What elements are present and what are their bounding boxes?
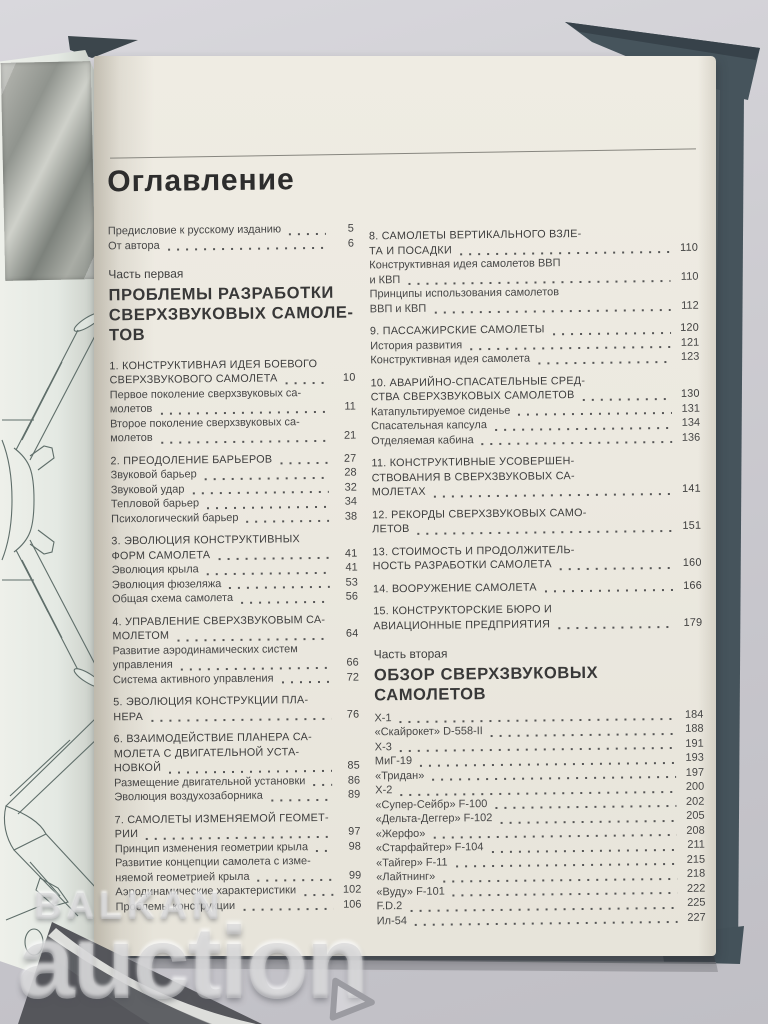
toc-page-number: 134	[676, 416, 700, 431]
toc-entry: Часть первая	[108, 265, 354, 282]
dot-leader	[283, 380, 328, 385]
toc-entry: 8. САМОЛЕТЫ ВЕРТИКАЛЬНОГО ВЗЛЕ-ТА И ПОСА…	[369, 226, 698, 259]
toc-page-number: 64	[334, 627, 358, 642]
toc-page-number: 160	[678, 556, 702, 571]
toc-entry-label: 1. КОНСТРУКТИВНАЯ ИДЕЯ БОЕВОГО	[109, 357, 317, 371]
dot-leader	[165, 246, 326, 252]
toc-entry-label: Конструктивная идея самолета	[370, 352, 530, 368]
toc-page-number: 197	[680, 765, 704, 780]
toc-entry-label: молетов	[110, 431, 153, 446]
toc-page-number: 32	[333, 480, 357, 495]
toc-entry-label: Отделяемая кабина	[371, 433, 474, 449]
toc-entry-label: 3. ЭВОЛЮЦИЯ КОНСТРУКТИВНЫХ	[111, 533, 300, 547]
toc-entry: 11. КОНСТРУКТИВНЫЕ УСОВЕРШЕН-СТВОВАНИЯ В…	[371, 453, 700, 500]
toc-page-number: 141	[677, 482, 701, 497]
toc-column-right: 8. САМОЛЕТЫ ВЕРТИКАЛЬНОГО ВЗЛЕ-ТА И ПОСА…	[369, 218, 706, 929]
toc-page-number: 188	[679, 722, 703, 737]
toc-page-number: 41	[334, 561, 358, 576]
toc-entry-label: Тепловой барьер	[111, 496, 199, 511]
dot-leader	[535, 359, 671, 365]
toc-page-number: 222	[681, 881, 705, 896]
toc-entry: Первое поколение сверхзвуковых са-молето…	[110, 385, 356, 417]
toc-entry: Проблемы конструкции106	[115, 897, 361, 914]
toc-page-number: 106	[337, 897, 361, 912]
toc-page-number: 53	[334, 575, 358, 590]
toc-page-number: 227	[682, 910, 706, 925]
dot-leader	[431, 491, 673, 498]
toc-entry-label: Общая схема самолета	[112, 591, 233, 607]
toc-entry-label: От автора	[108, 238, 160, 253]
toc-page-number: 151	[677, 519, 701, 534]
aircraft-side-drawing	[0, 710, 104, 980]
toc-entry-label: X-1	[374, 711, 391, 726]
toc-entry: Общая схема самолета56	[112, 590, 358, 607]
toc-page-number: 110	[674, 269, 698, 284]
toc-entry-label: МОЛЕТАХ	[372, 485, 426, 500]
toc-entry-label: 4. УПРАВЛЕНИЕ СВЕРХЗВУКОВЫМ СА-	[112, 613, 325, 627]
toc-entry: Развитие аэродинамических системуправлен…	[113, 641, 359, 673]
toc-page: Оглавление Предисловие к русскому издани…	[94, 56, 716, 956]
toc-entry-label: Принципы использования самолетов	[370, 286, 560, 300]
toc-page-number: 85	[336, 759, 360, 774]
toc-entry-label: АВИАЦИОННЫЕ ПРЕДПРИЯТИЯ	[373, 617, 550, 634]
toc-entry-label: Первое поколение сверхзвуковых са-	[110, 387, 302, 401]
toc-page-number: 76	[335, 707, 359, 722]
toc-page-number: 208	[681, 823, 705, 838]
dot-leader	[148, 717, 331, 723]
toc-entry-label: Система активного управления	[113, 671, 274, 687]
aircraft-photo	[1, 61, 96, 281]
toc-entry-label: ТОВ	[109, 325, 145, 343]
toc-entry: 7. САМОЛЕТЫ ИЗМЕНЯЕМОЙ ГЕОМЕТ-РИИ97	[114, 810, 360, 842]
toc-entry-label: «Супер-Сейбр» F-100	[375, 797, 487, 813]
left-page-sliver	[0, 50, 104, 1004]
toc-entry: От автора6	[108, 236, 354, 253]
toc-entry-label: «Дельта-Деггер» F-102	[375, 811, 492, 827]
toc-entry-label: Второе поколение сверхзвуковых са-	[110, 416, 300, 430]
toc-entry-label: 14. ВООРУЖЕНИЕ САМОЛЕТА	[373, 580, 537, 596]
toc-entry-label: МиГ-19	[375, 754, 412, 769]
aircraft-plan-drawing	[0, 300, 104, 700]
toc-entry-label: 10. АВАРИЙНО-СПАСАТЕЛЬНЫЕ СРЕД-	[371, 374, 586, 388]
toc-page-number: 121	[675, 335, 699, 350]
toc-page-number: 5	[330, 222, 354, 237]
toc-entry-label: X-2	[375, 783, 392, 798]
toc-page-number: 202	[680, 794, 704, 809]
toc-entry-label: молетов	[110, 402, 153, 417]
toc-entry-label: «Тридан»	[375, 768, 424, 783]
dot-leader	[238, 599, 330, 604]
toc-entry-label: 7. САМОЛЕТЫ ИЗМЕНЯЕМОЙ ГЕОМЕТ-	[114, 811, 328, 825]
toc-entry: 13. СТОИМОСТЬ И ПРОДОЛЖИТЕЛЬ-НОСТЬ РАЗРА…	[372, 541, 701, 574]
toc-page-number: 218	[681, 867, 705, 882]
toc-entry-label: НОВКОЙ	[114, 761, 161, 776]
toc-entry-label: МОЛЕТА С ДВИГАТЕЛЬНОЙ УСТА-	[114, 746, 300, 760]
toc-entry: 10. АВАРИЙНО-СПАСАТЕЛЬНЫЕ СРЕД-СТВА СВЕР…	[371, 372, 700, 405]
toc-page-number: 110	[674, 240, 698, 255]
toc-entry-label: Спасательная капсула	[371, 418, 487, 434]
toc-entry-label: Звуковой барьер	[111, 467, 197, 482]
toc-entry-label: X-3	[375, 740, 392, 755]
toc-entry: 15. КОНСТРУКТОРСКИЕ БЮРО ИАВИАЦИОННЫЕ ПР…	[373, 601, 702, 634]
dot-leader	[415, 528, 674, 535]
dot-leader	[555, 625, 674, 630]
dot-leader	[240, 907, 333, 912]
toc-page-number: 102	[337, 883, 361, 898]
toc-page-number: 21	[332, 429, 356, 444]
toc-entry-label: управления	[113, 658, 173, 673]
toc-page-number: 191	[680, 736, 704, 751]
dot-leader	[286, 231, 326, 235]
toc-entry: Система активного управления72	[113, 670, 359, 687]
toc-entry: ПРОБЛЕМЫ РАЗРАБОТКИСВЕРХЗВУКОВЫХ САМОЛЕ-…	[108, 282, 355, 345]
dot-leader	[301, 892, 333, 896]
toc-entry-label: 6. ВЗАИМОДЕЙСТВИЕ ПЛАНЕРА СА-	[114, 731, 312, 745]
toc-entry: 3. ЭВОЛЮЦИЯ КОНСТРУКТИВНЫХФОРМ САМОЛЕТА4…	[111, 532, 357, 564]
toc-entry-label: ПРОБЛЕМЫ РАЗРАБОТКИ	[108, 283, 334, 304]
toc-entry-label: F.D.2	[376, 899, 402, 914]
toc-entry-label: 13. СТОИМОСТЬ И ПРОДОЛЖИТЕЛЬ-	[372, 544, 574, 558]
page-title: Оглавление	[107, 163, 295, 199]
dot-leader	[268, 797, 333, 802]
toc-page-number: 28	[333, 466, 357, 481]
toc-entry-label: Развитие концепции самолета с изме-	[115, 855, 311, 869]
dot-leader	[277, 461, 328, 466]
toc-entry: 5. ЭВОЛЮЦИЯ КОНСТРУКЦИИ ПЛА-НЕРА76	[113, 693, 359, 725]
toc-page-number: 11	[332, 400, 356, 415]
toc-page-number: 131	[676, 401, 700, 416]
dot-leader	[310, 783, 332, 787]
toc-entry-label: ОБЗОР СВЕРХЗВУКОВЫХ	[374, 663, 598, 684]
photo-stage: Оглавление Предисловие к русскому издани…	[0, 0, 768, 1024]
toc-entry-label: 15. КОНСТРУКТОРСКИЕ БЮРО И	[373, 603, 552, 617]
toc-page-number: 27	[332, 451, 356, 466]
toc-entry-label: няемой геометрией крыла	[115, 869, 249, 885]
dot-leader	[244, 519, 330, 524]
toc-page-number: 66	[335, 656, 359, 671]
toc-page-number: 179	[678, 615, 702, 630]
toc-page-number: 184	[679, 707, 703, 722]
toc-entry-label: СТВОВАНИЯ В СВЕРХЗВУКОВЫХ СА-	[372, 470, 575, 484]
toc-entry: 6. ВЗАИМОДЕЙСТВИЕ ПЛАНЕРА СА-МОЛЕТА С ДВ…	[114, 730, 360, 776]
dot-leader	[412, 920, 678, 927]
toc-page-number: 97	[337, 825, 361, 840]
dot-leader	[279, 680, 331, 685]
toc-entry: Психологический барьер38	[111, 509, 357, 526]
dot-leader	[158, 438, 329, 444]
toc-page-number: 205	[680, 809, 704, 824]
toc-page-number: 56	[334, 590, 358, 605]
toc-page-number: 112	[675, 298, 699, 313]
toc-entry-label: «Вуду» F-101	[376, 884, 445, 899]
toc-columns: Предисловие к русскому изданию5От автора…	[108, 218, 706, 932]
toc-entry-label: «Лайтнинг»	[376, 870, 435, 885]
toc-page-number: 34	[333, 495, 357, 510]
toc-page-number: 38	[333, 509, 357, 524]
toc-page-number: 86	[336, 773, 360, 788]
toc-entry-label: ТА И ПОСАДКИ	[369, 243, 452, 258]
dot-leader	[542, 588, 674, 593]
toc-entry-label: ЛЕТОВ	[372, 522, 409, 537]
toc-entry-label: Развитие аэродинамических систем	[113, 643, 298, 657]
toc-page-number: 6	[330, 236, 354, 251]
toc-entry-label: 11. КОНСТРУКТИВНЫЕ УСОВЕРШЕН-	[371, 455, 574, 469]
toc-entry: ОБЗОР СВЕРХЗВУКОВЫХСАМОЛЕТОВ	[374, 661, 703, 705]
toc-entry-label: «Скайрокет» D-558-II	[374, 724, 482, 740]
toc-page-number: 225	[681, 896, 705, 911]
toc-entry-label: «Жерфо»	[376, 826, 426, 841]
toc-entry: Развитие концепции самолета с изме-няемо…	[115, 854, 361, 886]
dot-leader	[313, 849, 333, 853]
toc-entry-label: Звуковой удар	[111, 482, 185, 497]
toc-entry-label: Конструктивная идея самолетов ВВП	[369, 257, 560, 271]
toc-entry-label: НЕРА	[113, 709, 143, 724]
toc-page-number: 123	[675, 350, 699, 365]
toc-page-number: 72	[335, 670, 359, 685]
toc-entry-label: РИИ	[115, 827, 139, 842]
toc-entry-label: и КВП	[369, 273, 400, 288]
dot-leader	[557, 565, 674, 570]
toc-page-number: 41	[333, 546, 357, 561]
toc-page-number: 120	[675, 321, 699, 336]
toc-page-number: 166	[678, 578, 702, 593]
toc-entry-label: «Тайгер» F-11	[376, 855, 448, 870]
toc-entry-label: ВВП и КВП	[370, 301, 427, 316]
toc-entry: 12. РЕКОРДЫ СВЕРХЗВУКОВЫХ САМО-ЛЕТОВ151	[372, 504, 701, 537]
toc-entry-label: СВЕРХЗВУКОВЫХ САМОЛЕ-	[109, 303, 354, 324]
toc-entry-label: МОЛЕТОМ	[112, 629, 169, 644]
toc-entry: Часть вторая	[374, 644, 703, 662]
toc-page-number: 10	[331, 371, 355, 386]
toc-entry-label: НОСТЬ РАЗРАБОТКИ САМОЛЕТА	[373, 557, 552, 574]
dot-leader	[431, 308, 671, 315]
toc-entry-label: Часть первая	[108, 266, 183, 281]
toc-entry-label: ФОРМ САМОЛЕТА	[111, 548, 210, 564]
toc-entry-label: Часть вторая	[374, 647, 448, 662]
toc-entry-label: 8. САМОЛЕТЫ ВЕРТИКАЛЬНОГО ВЗЛЕ-	[369, 228, 582, 242]
toc-entry-label: Психологический барьер	[111, 510, 239, 526]
toc-page-number: 200	[680, 780, 704, 795]
toc-entry-label: Эволюция крыла	[112, 562, 199, 577]
toc-entry: 1. КОНСТРУКТИВНАЯ ИДЕЯ БОЕВОГОСВЕРХЗВУКО…	[109, 356, 355, 388]
toc-entry-label: 5. ЭВОЛЮЦИЯ КОНСТРУКЦИИ ПЛА-	[113, 694, 308, 708]
toc-entry: Конструктивная идея самолетов ВВПи КВП11…	[369, 255, 698, 288]
toc-entry-label: 12. РЕКОРДЫ СВЕРХЗВУКОВЫХ САМО-	[372, 506, 587, 520]
toc-entry-label: Эволюция фюзеляжа	[112, 577, 222, 593]
toc-page-number: 193	[680, 751, 704, 766]
toc-entry: Конструктивная идея самолета123	[370, 350, 699, 368]
toc-entry-label: Катапультируемое сиденье	[371, 403, 511, 419]
toc-entry-label: Эволюция воздухозаборника	[114, 789, 263, 805]
toc-page-number: 89	[336, 788, 360, 803]
toc-page-number: 130	[676, 387, 700, 402]
toc-column-left: Предисловие к русскому изданию5От автора…	[108, 222, 362, 932]
toc-entry-label: «Старфайтер» F-104	[376, 840, 484, 856]
toc-entry-label: Проблемы конструкции	[115, 898, 235, 914]
toc-entry-label: САМОЛЕТОВ	[374, 685, 486, 704]
toc-page-number: 99	[337, 868, 361, 883]
toc-entry: Принципы использования самолетовВВП и КВ…	[370, 284, 699, 317]
toc-entry: Эволюция воздухозаборника89	[114, 788, 360, 805]
dot-leader	[479, 440, 673, 446]
toc-page-number: 136	[676, 430, 700, 445]
toc-page-number: 215	[681, 852, 705, 867]
toc-entry: 4. УПРАВЛЕНИЕ СВЕРХЗВУКОВЫМ СА-МОЛЕТОМ64	[112, 612, 358, 644]
toc-entry: Второе поколение сверхзвуковых са-молето…	[110, 414, 356, 446]
toc-entry: Отделяемая кабина136	[371, 430, 700, 448]
toc-page-number: 211	[681, 838, 705, 853]
toc-page-number: 98	[337, 839, 361, 854]
toc-entry-label: История развития	[370, 338, 462, 354]
toc-entry: Ил-54227	[377, 910, 706, 928]
toc-entry: 14. ВООРУЖЕНИЕ САМОЛЕТА166	[373, 578, 702, 596]
toc-entry-label: Ил-54	[377, 914, 407, 929]
header-rule	[110, 148, 696, 158]
